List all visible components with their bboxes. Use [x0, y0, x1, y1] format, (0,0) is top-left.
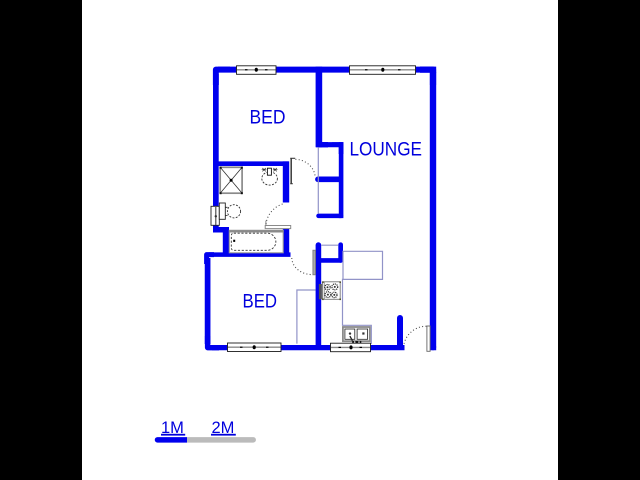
svg-text:LOUNGE: LOUNGE	[350, 140, 423, 161]
svg-text:BED: BED	[250, 108, 286, 129]
svg-text:BED: BED	[243, 292, 278, 313]
